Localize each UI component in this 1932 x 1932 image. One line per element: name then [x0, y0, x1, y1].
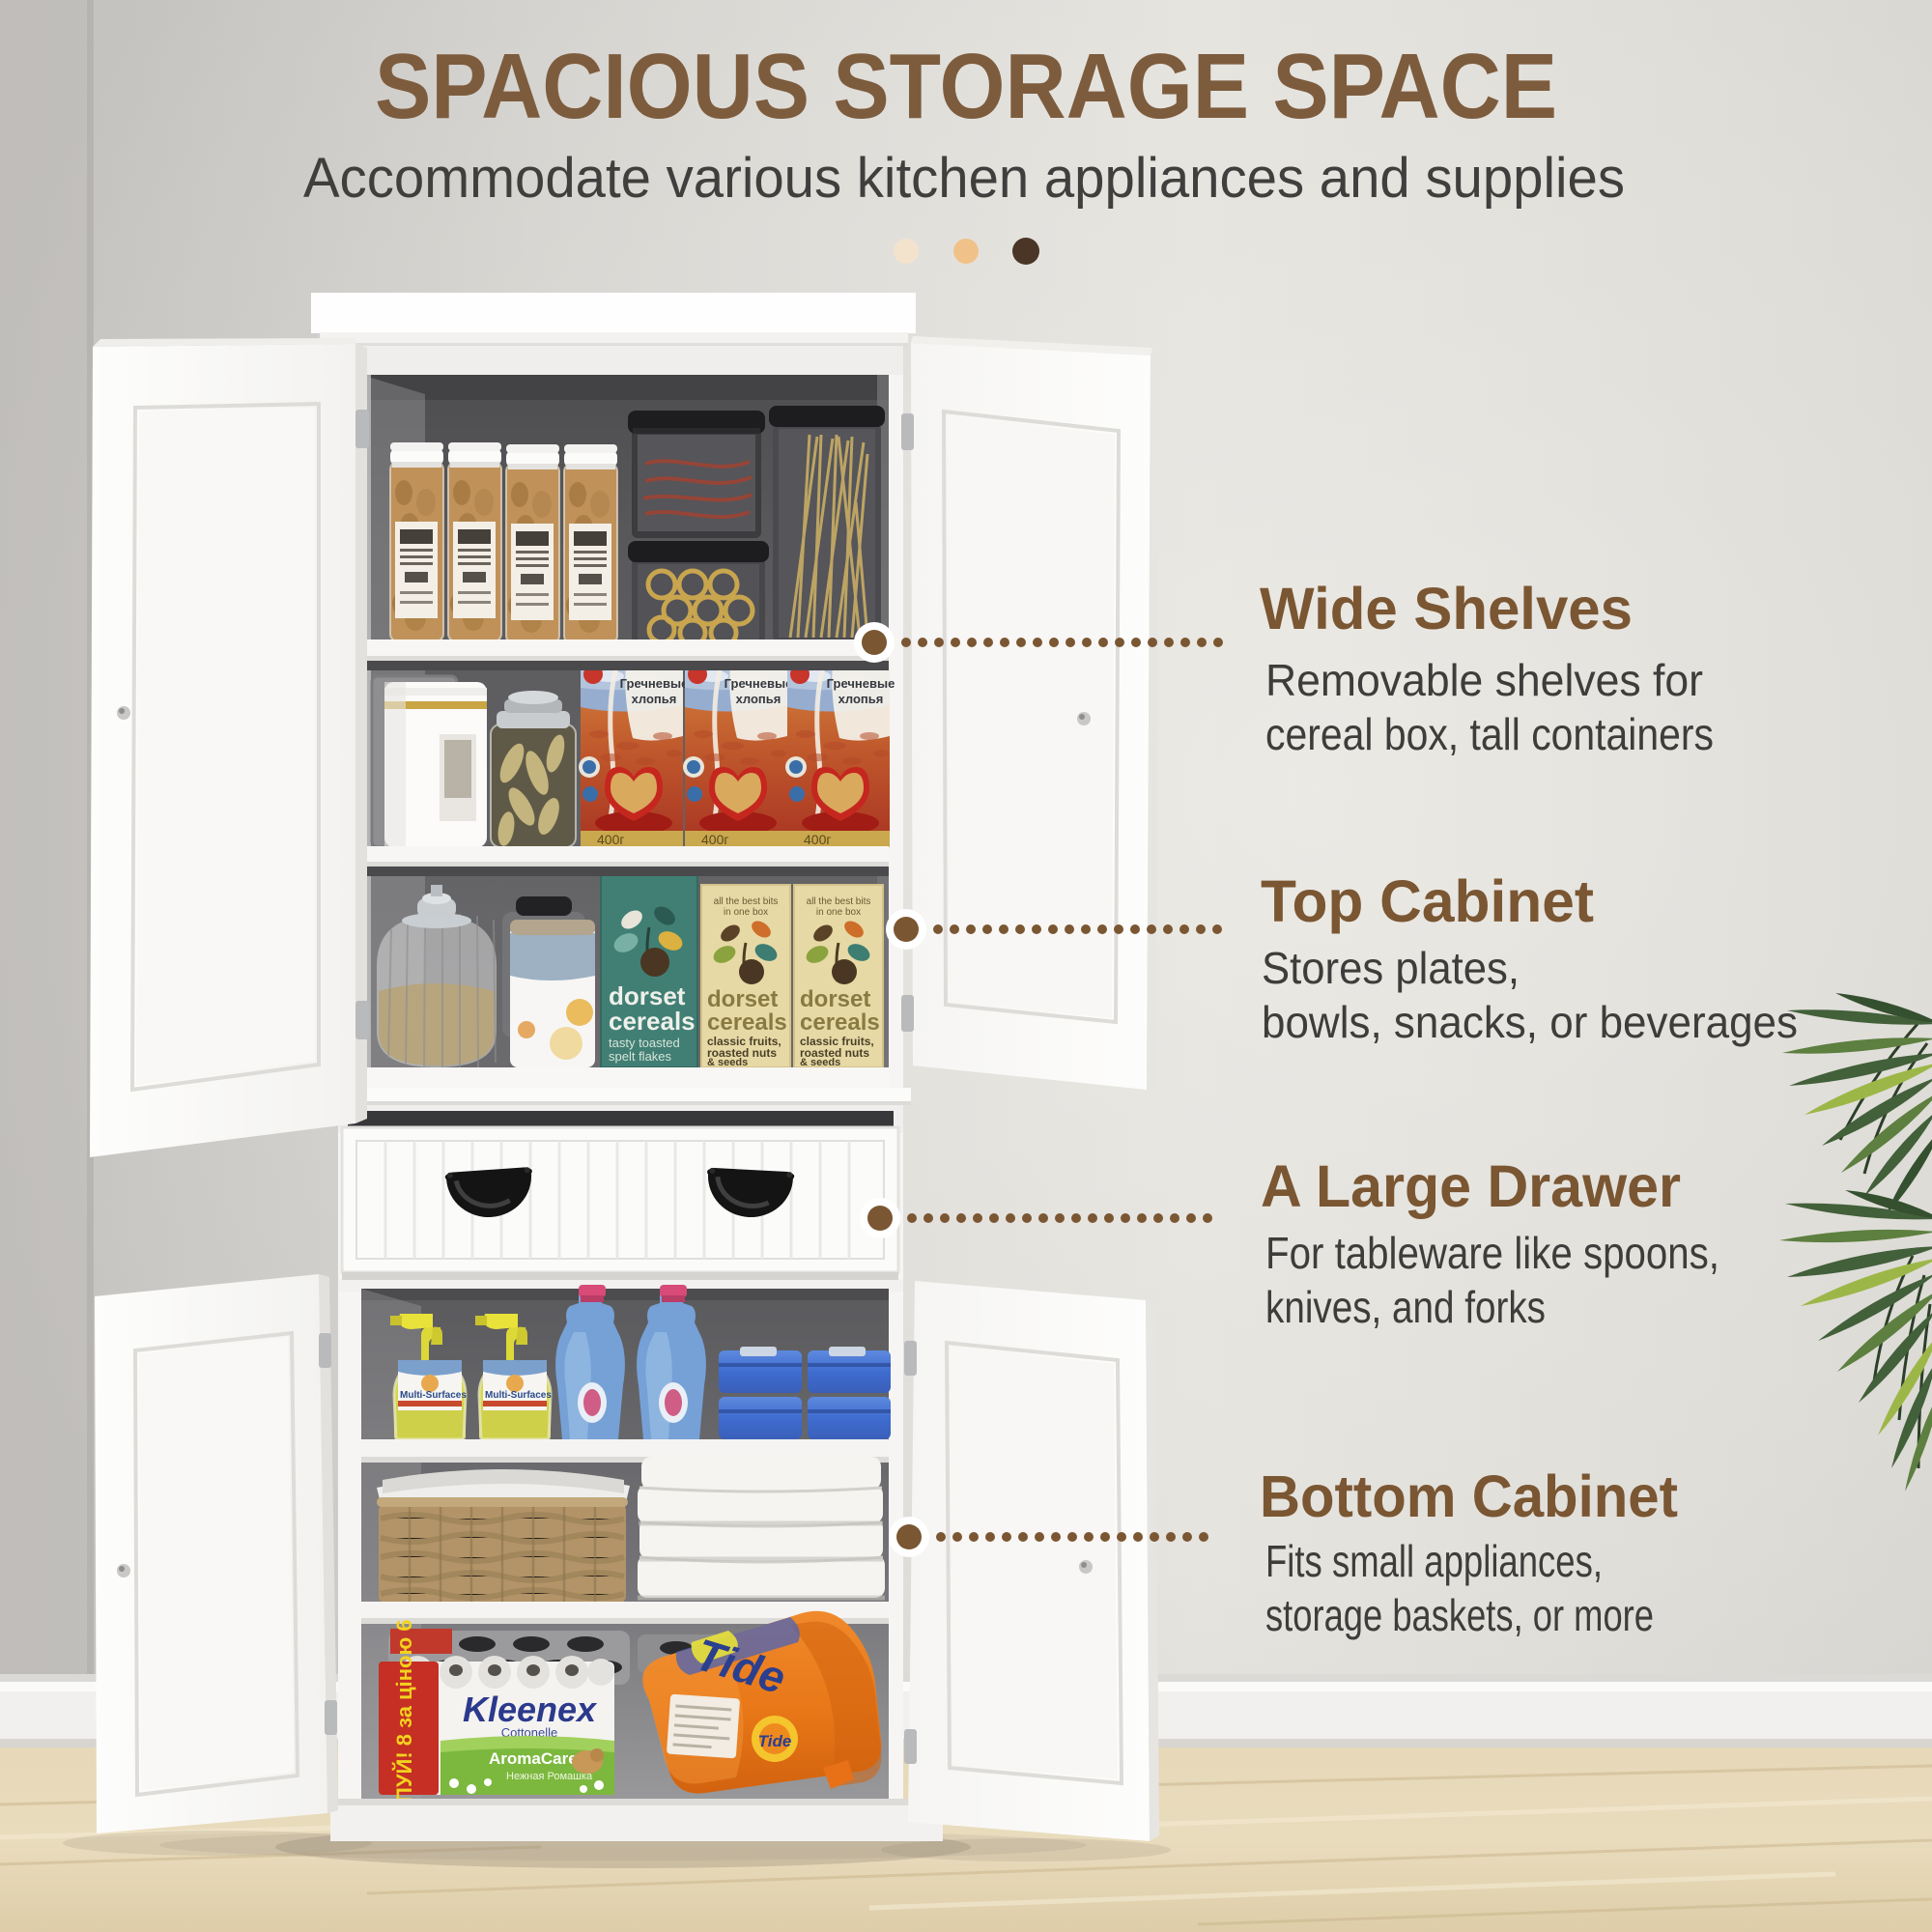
svg-text:Top Cabinet: Top Cabinet: [1261, 868, 1594, 934]
svg-text:Wide Shelves: Wide Shelves: [1260, 576, 1633, 641]
svg-text:400г: 400г: [597, 832, 624, 847]
svg-text:cereals: cereals: [707, 1009, 787, 1036]
svg-text:& seeds: & seeds: [707, 1057, 748, 1068]
svg-text:хлопья: хлопья: [632, 692, 677, 706]
svg-text:Fits small appliances,: Fits small appliances,: [1265, 1536, 1603, 1586]
svg-text:storage baskets, or more: storage baskets, or more: [1265, 1590, 1654, 1640]
svg-text:Stores plates,: Stores plates,: [1262, 943, 1520, 993]
svg-text:Removable shelves for: Removable shelves for: [1265, 655, 1703, 705]
svg-text:AromaCare: AromaCare: [489, 1749, 578, 1768]
svg-text:tasty toasted: tasty toasted: [609, 1036, 680, 1050]
svg-text:in one box: in one box: [724, 907, 768, 918]
svg-text:Tide: Tide: [758, 1732, 792, 1750]
svg-text:Multi-Surfaces: Multi-Surfaces: [400, 1390, 467, 1401]
svg-text:КУПУЙ! 8 за ціною 6: КУПУЙ! 8 за ціною 6: [392, 1619, 416, 1829]
svg-text:Kleenex: Kleenex: [463, 1690, 598, 1729]
svg-text:A Large Drawer: A Large Drawer: [1261, 1153, 1681, 1219]
svg-text:Accommodate various kitchen ap: Accommodate various kitchen appliances a…: [303, 147, 1625, 210]
svg-text:Bottom Cabinet: Bottom Cabinet: [1260, 1463, 1678, 1529]
svg-text:knives, and forks: knives, and forks: [1265, 1282, 1546, 1332]
svg-text:all the best bits: all the best bits: [714, 896, 779, 907]
svg-text:SPACIOUS STORAGE SPACE: SPACIOUS STORAGE SPACE: [375, 35, 1557, 138]
svg-text:cereal box, tall containers: cereal box, tall containers: [1265, 709, 1714, 759]
svg-text:Нежная Ромашка: Нежная Ромашка: [506, 1771, 593, 1782]
svg-text:dorset: dorset: [707, 986, 778, 1012]
svg-text:For tableware like spoons,: For tableware like spoons,: [1265, 1228, 1719, 1278]
svg-text:Гречневые: Гречневые: [620, 676, 689, 691]
svg-text:bowls, snacks, or beverages: bowls, snacks, or beverages: [1262, 997, 1798, 1047]
svg-text:cereals: cereals: [609, 1007, 696, 1036]
svg-text:spelt flakes: spelt flakes: [609, 1049, 672, 1064]
